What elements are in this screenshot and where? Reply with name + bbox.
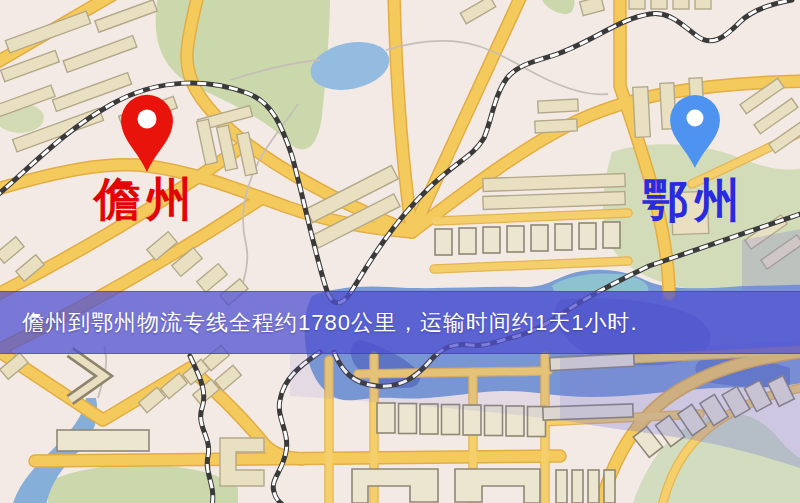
- destination-city-label: 鄂州: [642, 177, 746, 223]
- map-artwork: [0, 0, 800, 503]
- route-info-text: 儋州到鄂州物流专线全程约1780公里，运输时间约1天1小时.: [0, 308, 638, 338]
- route-info-banner: 儋州到鄂州物流专线全程约1780公里，运输时间约1天1小时.: [0, 291, 800, 354]
- origin-city-label: 儋州: [94, 176, 198, 222]
- map-canvas: 儋州 鄂州 儋州到鄂州物流专线全程约1780公里，运输时间约1天1小时.: [0, 0, 800, 503]
